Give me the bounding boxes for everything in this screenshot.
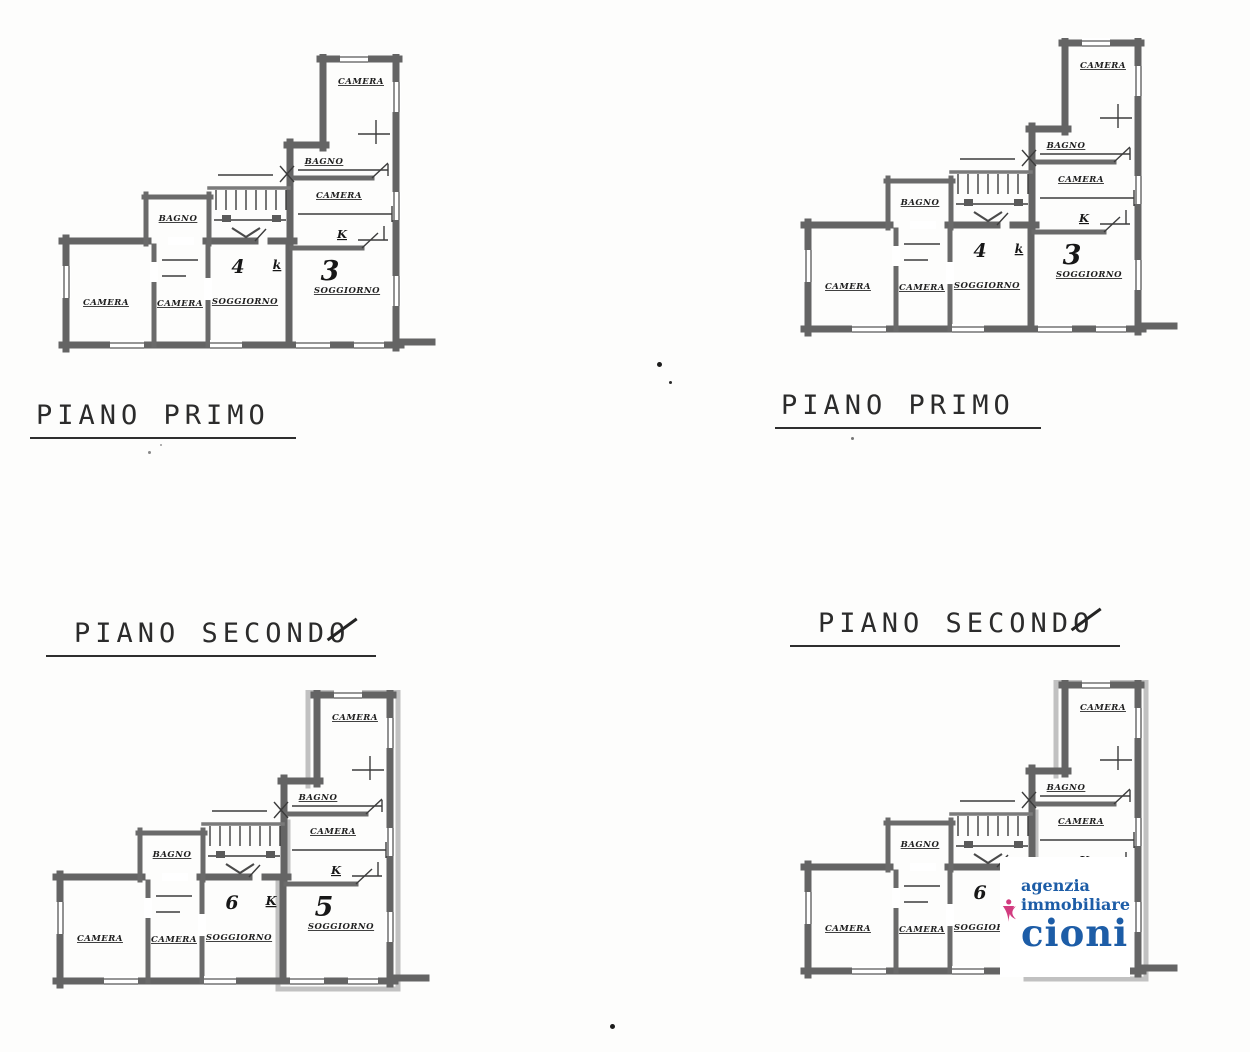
room-labels: CAMERA BAGNO CAMERA K 3 SOGGIORNO BAGNO …	[825, 61, 1126, 293]
stairwell	[956, 801, 1028, 863]
title-piano-primo-right: PIANO PRIMO	[775, 390, 1041, 429]
unit-number-right: 3	[321, 256, 340, 287]
unit-number-right: 5	[315, 892, 334, 923]
title-text: PIANO PRIMO	[781, 390, 1015, 421]
floor-plan-drawing: CAMERA BAGNO CAMERA K 5 SOGGIORNO BAGNO …	[52, 690, 432, 1010]
room-label-camera-top: CAMERA	[332, 713, 378, 723]
unit-number-right: 3	[1063, 240, 1082, 271]
room-label-soggiorno-right: SOGGIORNO	[314, 286, 380, 296]
kitchen-letter-mid: k	[273, 257, 282, 272]
stairwell	[956, 159, 1028, 221]
kitchen-letter-mid: K	[265, 893, 278, 908]
floor-plan-drawing: CAMERA BAGNO CAMERA K 3 SOGGIORNO BAGNO …	[58, 54, 438, 374]
room-label-bagno-left: BAGNO	[158, 214, 198, 224]
room-label-kitchen-right: K	[1078, 211, 1090, 225]
door-openings	[150, 163, 388, 300]
room-label-kitchen-right: K	[336, 227, 348, 241]
room-label-soggiorno-right: SOGGIORNO	[308, 922, 374, 932]
logo-text: agenzia immobiliare cioni	[1021, 876, 1130, 952]
scan-speck	[669, 381, 672, 384]
logo-line-agenzia: agenzia	[1021, 876, 1130, 895]
title-piano-secondo-right: PIANO SECONDO	[790, 608, 1120, 647]
room-label-bagno-left: BAGNO	[152, 850, 192, 860]
room-label-camera-bottom-left: CAMERA	[77, 934, 123, 944]
title-piano-secondo-left: PIANO SECONDO	[46, 618, 376, 657]
floor-plan-piano-primo-right: CAMERA BAGNO CAMERA K 3 SOGGIORNO BAGNO …	[800, 38, 1180, 358]
room-label-bagno-left: BAGNO	[900, 840, 940, 850]
stairwell	[208, 811, 280, 873]
room-label-soggiorno-mid: SOGGIORNO	[212, 297, 278, 307]
floor-plan-drawing: CAMERA BAGNO CAMERA K 3 SOGGIORNO BAGNO …	[800, 38, 1180, 358]
room-label-camera-top: CAMERA	[1080, 61, 1126, 71]
room-label-camera-top: CAMERA	[338, 77, 384, 87]
room-label-soggiorno-right: SOGGIORNO	[1056, 270, 1122, 280]
unit-number-mid: 4	[231, 256, 244, 278]
room-label-bagno-left: BAGNO	[900, 198, 940, 208]
room-label-kitchen-right: K	[330, 863, 342, 877]
room-labels: CAMERA BAGNO CAMERA K 3 SOGGIORNO BAGNO …	[83, 77, 384, 309]
room-label-soggiorno-mid: SOGGIORNO	[954, 281, 1020, 291]
agency-logo: agenzia immobiliare cioni	[1000, 857, 1130, 977]
title-text: PIANO SECONDO	[74, 618, 350, 649]
cioni-logo-icon	[1002, 860, 1016, 964]
room-label-camera-bottom-mid: CAMERA	[157, 299, 203, 309]
scan-speck	[851, 437, 854, 440]
kitchen-letter-mid: k	[1015, 241, 1024, 256]
room-label-camera-bottom-mid: CAMERA	[899, 283, 945, 293]
room-label-camera-right: CAMERA	[1058, 817, 1104, 827]
room-labels: CAMERA BAGNO CAMERA K 5 SOGGIORNO BAGNO …	[77, 713, 378, 945]
door-openings	[144, 799, 382, 936]
room-label-bagno-right: BAGNO	[298, 793, 338, 803]
room-label-camera-bottom-mid: CAMERA	[899, 925, 945, 935]
title-text: PIANO PRIMO	[36, 400, 270, 431]
unit-number-mid: 6	[973, 882, 986, 904]
door-openings	[892, 147, 1130, 284]
unit-number-mid: 4	[973, 240, 986, 262]
room-label-camera-right: CAMERA	[310, 827, 356, 837]
logo-name-cioni: cioni	[1021, 915, 1130, 952]
room-label-camera-bottom-left: CAMERA	[825, 924, 871, 934]
unit-number-mid: 6	[225, 892, 238, 914]
stairwell	[214, 175, 286, 237]
floor-plan-piano-secondo-left: CAMERA BAGNO CAMERA K 5 SOGGIORNO BAGNO …	[52, 690, 432, 1010]
room-label-camera-right: CAMERA	[1058, 175, 1104, 185]
room-label-camera-bottom-left: CAMERA	[825, 282, 871, 292]
room-label-bagno-right: BAGNO	[1046, 783, 1086, 793]
room-label-soggiorno-mid: SOGGIORNO	[206, 933, 272, 943]
title-piano-primo-left: PIANO PRIMO	[30, 400, 296, 439]
floor-plan-piano-primo-left: CAMERA BAGNO CAMERA K 3 SOGGIORNO BAGNO …	[58, 54, 438, 374]
room-label-camera-bottom-mid: CAMERA	[151, 935, 197, 945]
room-label-camera-bottom-left: CAMERA	[83, 298, 129, 308]
room-label-bagno-right: BAGNO	[1046, 141, 1086, 151]
title-text: PIANO SECONDO	[818, 608, 1094, 639]
unit-highlight-trace	[278, 692, 398, 989]
room-label-camera-right: CAMERA	[316, 191, 362, 201]
room-label-camera-top: CAMERA	[1080, 703, 1126, 713]
scan-speck	[160, 444, 162, 446]
room-label-bagno-right: BAGNO	[304, 157, 344, 167]
scan-speck	[148, 451, 151, 454]
scan-speck	[610, 1024, 615, 1029]
scan-speck	[657, 362, 662, 367]
